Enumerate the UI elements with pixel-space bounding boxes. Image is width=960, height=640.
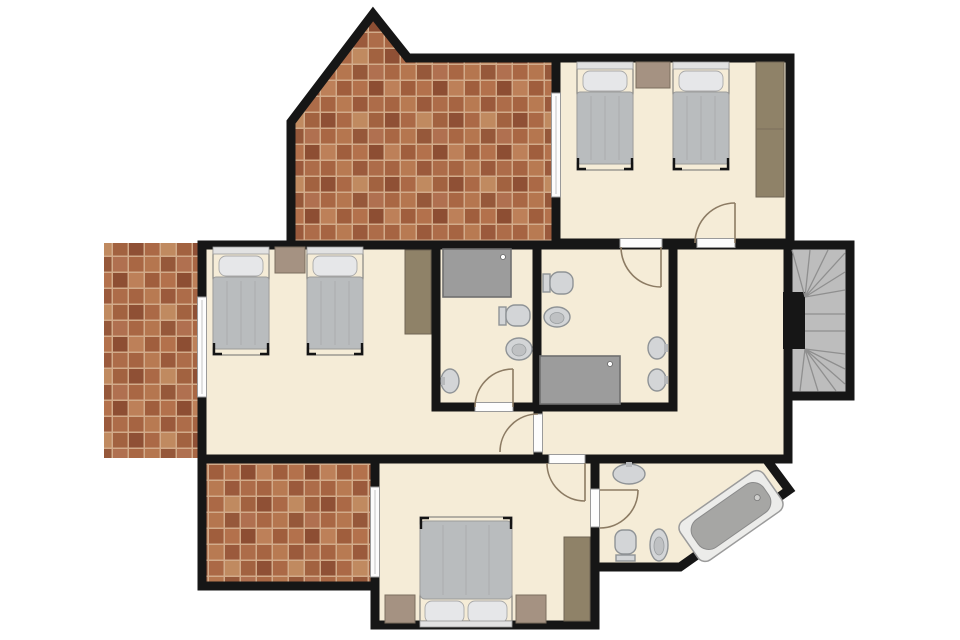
nightstand-2	[275, 247, 305, 273]
sink-4-faucet	[626, 462, 632, 467]
sink-2	[648, 337, 666, 359]
floor-plan-page	[0, 0, 960, 640]
shower-drain-1	[501, 255, 506, 260]
bidet-1-bowl	[512, 344, 526, 356]
single-bed-4	[307, 247, 363, 355]
shower-drain-2	[608, 362, 613, 367]
wardrobe-2	[405, 250, 431, 334]
toilet-3-tank	[616, 555, 635, 561]
nightstand-1	[636, 62, 670, 88]
bidet-2-bowl	[550, 313, 564, 324]
toilet-2	[550, 272, 573, 294]
toilet-1	[506, 305, 530, 326]
terrace-bottom	[202, 459, 375, 586]
single-bed-1	[577, 62, 633, 170]
single-bed-3	[213, 247, 269, 355]
single-bed-2	[673, 62, 729, 170]
toilet-3	[615, 530, 636, 554]
toilet-1-tank	[499, 307, 506, 325]
bidet-3-bowl	[654, 537, 664, 555]
stair-newel-wall	[783, 292, 805, 349]
nightstand-3	[385, 595, 415, 623]
terrace-left	[104, 243, 198, 458]
sink-1-faucet	[441, 377, 445, 385]
toilet-2-tank	[543, 274, 550, 292]
sink-3	[648, 369, 666, 391]
wardrobe-3	[564, 537, 590, 621]
staircase	[783, 245, 850, 396]
floor-plan-svg	[0, 0, 960, 640]
nightstand-4	[516, 595, 546, 623]
sink-2-faucet	[664, 344, 668, 352]
sink-3-faucet	[664, 376, 668, 384]
